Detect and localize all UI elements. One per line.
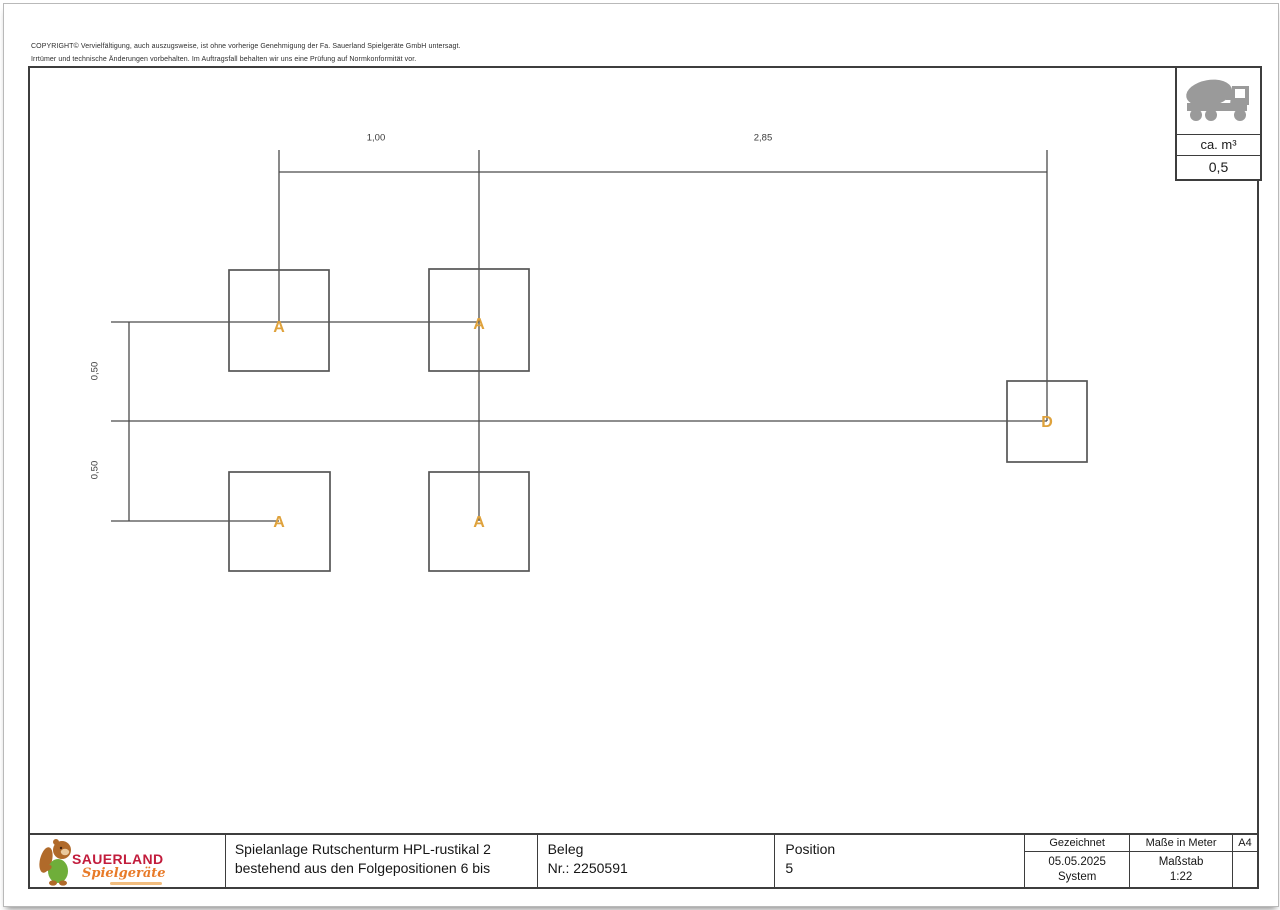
scale-value: 1:22 (1130, 870, 1232, 885)
dimension-top-2: 2,85 (754, 133, 773, 144)
beleg-label: Beleg (548, 840, 775, 859)
drawn-column: Gezeichnet 05.05.2025 System (1025, 835, 1130, 887)
drawn-by: System (1025, 870, 1129, 885)
beleg-number: Nr.: 2250591 (548, 859, 775, 878)
foundation-label-a4: A (473, 514, 485, 532)
paper-format: A4 (1233, 835, 1257, 852)
units-header: Maße in Meter (1130, 835, 1232, 852)
units-column: Maße in Meter Maßstab 1:22 (1130, 835, 1233, 887)
concrete-mixer-icon (1177, 68, 1260, 134)
foundation-label-a3: A (273, 514, 285, 532)
concrete-unit-label: ca. m³ (1177, 134, 1260, 155)
format-empty-cell (1233, 852, 1257, 887)
foundation-label-a2: A (473, 316, 485, 334)
drawing-title-cell: Spielanlage Rutschenturm HPL-rustikal 2 … (226, 835, 538, 887)
dimension-left-1: 0,50 (90, 362, 101, 381)
foundation-plan (4, 4, 1279, 907)
format-column: A4 (1233, 835, 1257, 887)
position-label: Position (785, 840, 1024, 859)
foundation-label-a1: A (273, 319, 285, 337)
drawing-title-line-2: bestehend aus den Folgepositionen 6 bis (235, 859, 537, 878)
foundation-label-d: D (1041, 414, 1053, 432)
concrete-volume-value: 0,5 (1177, 155, 1260, 179)
logo-brand-name: SAUERLAND (72, 839, 166, 867)
title-block: SAUERLAND Spielgeräte Spielanlage Rutsch… (28, 833, 1259, 889)
drawing-sheet: COPYRIGHT© Vervielfältigung, auch auszug… (3, 3, 1279, 907)
drawn-header: Gezeichnet (1025, 835, 1129, 852)
position-value: 5 (785, 859, 1024, 878)
logo-tagline (110, 882, 162, 885)
logo-brand-sub: Spielgeräte (72, 867, 166, 880)
dimension-top-1: 1,00 (367, 133, 386, 144)
dimension-left-2: 0,50 (90, 461, 101, 480)
drawn-date: 05.05.2025 (1025, 855, 1129, 870)
beleg-cell: Beleg Nr.: 2250591 (538, 835, 776, 887)
position-cell: Position 5 (775, 835, 1025, 887)
scale-values: Maßstab 1:22 (1130, 852, 1232, 887)
concrete-volume-box: ca. m³ 0,5 (1175, 66, 1262, 181)
logo-text: SAUERLAND Spielgeräte (72, 839, 166, 885)
drawing-title-line-1: Spielanlage Rutschenturm HPL-rustikal 2 (235, 840, 537, 859)
drawn-values: 05.05.2025 System (1025, 852, 1129, 887)
logo-cell: SAUERLAND Spielgeräte (30, 835, 226, 887)
scale-label: Maßstab (1130, 855, 1232, 870)
